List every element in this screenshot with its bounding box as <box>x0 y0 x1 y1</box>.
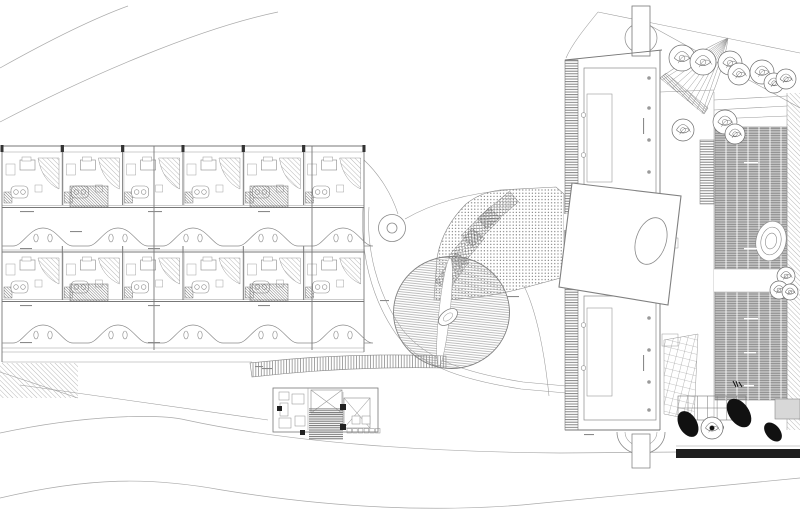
stair-core <box>70 186 108 207</box>
pillow <box>203 257 212 261</box>
lower-hall <box>584 296 656 420</box>
pillow <box>324 257 333 261</box>
site-plan <box>0 0 800 530</box>
curved-wall-hatch <box>279 158 300 189</box>
micro-label-dash <box>20 305 32 306</box>
wardrobe <box>247 264 256 275</box>
room-module <box>1 145 60 203</box>
curved-wall-hatch <box>98 158 119 189</box>
micro-label-dash <box>148 248 160 249</box>
slope-hatch <box>0 363 78 398</box>
stair-core <box>70 284 108 301</box>
site-plan-canvas <box>0 0 800 530</box>
pillow <box>203 157 212 161</box>
furniture-block <box>279 392 289 400</box>
fan-band <box>660 73 708 114</box>
contour-line <box>0 478 800 508</box>
wardrobe <box>6 164 15 175</box>
terrace-table <box>48 331 52 339</box>
room-modules <box>1 145 366 300</box>
micro-label-dash <box>258 211 270 212</box>
tree-trunk <box>710 426 715 431</box>
column-dot <box>647 76 651 80</box>
wardrobe <box>247 164 256 175</box>
tree-canopy <box>728 63 750 85</box>
terrace-table <box>109 234 113 242</box>
column-dot <box>647 348 651 352</box>
facade-post <box>61 145 64 152</box>
column-dot <box>647 380 651 384</box>
rock-blob <box>761 419 786 445</box>
terrace-table <box>198 331 202 339</box>
tree-icon <box>782 284 798 300</box>
ground-line <box>20 385 268 420</box>
curved-wall-hatch <box>38 158 59 189</box>
facade-post <box>362 145 365 152</box>
column-dot <box>647 316 651 320</box>
hotel-wing <box>0 145 373 420</box>
micro-label-dash <box>148 342 160 343</box>
terrace-table <box>184 331 188 339</box>
tree-canopy <box>725 124 745 144</box>
wardrobe <box>6 264 15 275</box>
column-dot <box>647 408 651 412</box>
furniture-block <box>295 416 305 426</box>
terrace-table <box>34 331 38 339</box>
micro-label-dash-white <box>735 282 747 283</box>
pillow <box>82 157 91 161</box>
hub-inner-circle <box>387 223 397 233</box>
pillow <box>82 257 91 261</box>
curved-wall-hatch <box>159 158 180 189</box>
table <box>156 185 163 192</box>
courtyard-stair <box>700 140 714 204</box>
furniture-block <box>279 418 291 428</box>
pillow <box>143 157 152 161</box>
diagonal-paving <box>664 334 698 420</box>
micro-label-dash-vertical <box>643 118 644 134</box>
curved-wall-hatch <box>219 158 240 189</box>
north-stem <box>632 6 650 56</box>
terrace-table <box>48 234 52 242</box>
micro-label-dash <box>20 342 32 343</box>
terrace-table <box>259 234 263 242</box>
column-circle <box>581 153 586 158</box>
south-stem <box>632 434 650 468</box>
contour-line <box>0 12 278 122</box>
stair-core <box>250 284 288 301</box>
micro-label-dash <box>507 296 519 297</box>
table <box>216 280 223 287</box>
garden-pad <box>775 399 800 419</box>
furniture-block <box>292 394 304 404</box>
bed <box>141 160 156 170</box>
terrace-table <box>273 331 277 339</box>
micro-label-dash <box>148 211 162 212</box>
tree-icon-dark <box>701 417 723 439</box>
terrace-table <box>123 331 127 339</box>
equipment-block <box>300 430 305 435</box>
planter-wave <box>2 228 373 246</box>
pillow <box>263 157 272 161</box>
path-arc-right-of-deck <box>524 286 549 396</box>
terrace-table <box>348 234 352 242</box>
terrace-table <box>334 234 338 242</box>
wardrobe <box>127 264 136 275</box>
micro-label-dash <box>255 366 263 367</box>
column-dot <box>647 106 651 110</box>
room-module <box>181 145 240 205</box>
micro-label-dash-white <box>744 352 756 353</box>
table <box>35 185 42 192</box>
wardrobe <box>187 264 196 275</box>
bed <box>141 260 156 270</box>
column-circle <box>581 366 586 371</box>
micro-label-dash <box>20 248 32 249</box>
terrace-table <box>334 331 338 339</box>
micro-label-dash-white <box>744 385 754 386</box>
room-module <box>121 145 180 205</box>
terrace-table <box>348 331 352 339</box>
terrace-table <box>109 331 113 339</box>
table <box>337 280 344 287</box>
micro-label-dash-white <box>744 318 758 319</box>
tree-icon <box>672 119 694 141</box>
tree-icon <box>690 49 716 75</box>
furniture-block <box>362 416 370 424</box>
table <box>35 280 42 287</box>
tree-icon <box>725 124 745 144</box>
tree-icon <box>776 69 796 89</box>
pillow <box>143 257 152 261</box>
tree-canopy <box>690 49 716 75</box>
pillow <box>324 157 333 161</box>
facade-post <box>242 145 245 152</box>
pergola-strip <box>250 355 446 377</box>
equipment-block <box>340 404 346 410</box>
column-circle <box>581 113 586 118</box>
facade-post <box>181 145 184 152</box>
pillow <box>263 257 272 261</box>
micro-label-dash-vertical <box>643 355 644 371</box>
room-module <box>302 145 361 205</box>
stair-core <box>250 186 288 207</box>
facade-post <box>302 145 305 152</box>
retaining-wall-band <box>676 449 800 458</box>
facade-post <box>121 145 124 152</box>
terrace-table <box>273 234 277 242</box>
table <box>216 185 223 192</box>
wardrobe <box>66 164 75 175</box>
curved-wall-hatch <box>340 158 361 189</box>
terrace-table <box>198 234 202 242</box>
contour-line <box>0 6 128 68</box>
tree-icon <box>728 63 750 85</box>
micro-label-dash <box>20 211 34 212</box>
micro-label-dash <box>380 300 389 301</box>
bed <box>261 160 276 170</box>
column-dot <box>647 170 651 174</box>
bed <box>322 260 337 270</box>
micro-label-dash-white <box>744 248 758 249</box>
service-deck <box>309 408 343 440</box>
pillow <box>22 157 31 161</box>
column-circle <box>581 323 586 328</box>
terrace-table <box>259 331 263 339</box>
bed <box>322 160 337 170</box>
path-hub <box>379 215 406 242</box>
east-slope-hatch <box>787 93 800 430</box>
bed <box>80 160 95 170</box>
bed <box>201 260 216 270</box>
tree-canopy <box>672 119 694 141</box>
column-dot <box>647 138 651 142</box>
tree-canopy <box>776 69 796 89</box>
table <box>156 280 163 287</box>
wardrobe <box>127 164 136 175</box>
lower-room <box>587 308 612 396</box>
terrace-table <box>123 234 127 242</box>
table <box>337 185 344 192</box>
road-connector <box>566 12 598 58</box>
circular-timber-deck <box>394 257 510 369</box>
upper-room <box>587 94 612 182</box>
terrace-table <box>184 234 188 242</box>
facade-post <box>1 145 4 152</box>
micro-label-dash-white <box>744 162 758 163</box>
wardrobe <box>187 164 196 175</box>
bed <box>20 260 35 270</box>
service-building <box>273 388 380 440</box>
building-end-connector <box>364 160 398 214</box>
planter-wave <box>2 325 373 343</box>
equipment-block <box>340 424 346 430</box>
terrace-table <box>34 234 38 242</box>
equipment-block <box>277 406 282 411</box>
micro-label-dash <box>262 368 272 369</box>
wardrobe <box>66 264 75 275</box>
pillow <box>22 257 31 261</box>
louvred-decks <box>715 127 787 400</box>
micro-label-dash <box>584 434 594 435</box>
micro-label-dash <box>148 305 160 306</box>
furniture-block <box>352 416 360 424</box>
bed <box>20 160 35 170</box>
micro-label-dash <box>70 231 82 232</box>
micro-label-dash <box>258 305 270 306</box>
bed <box>80 260 95 270</box>
bed <box>201 160 216 170</box>
bed <box>261 260 276 270</box>
